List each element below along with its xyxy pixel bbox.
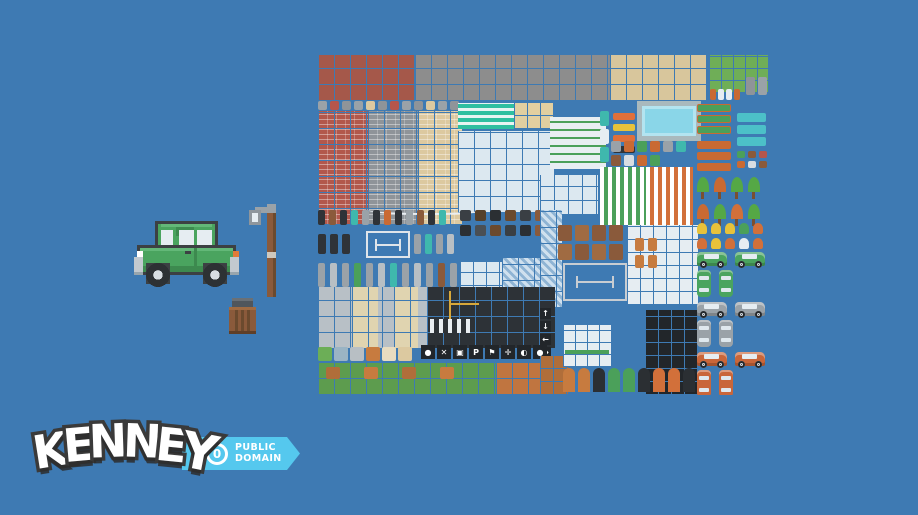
sprite-tile bbox=[676, 141, 686, 152]
car-top-sprite bbox=[697, 270, 711, 297]
floorplan-beam bbox=[577, 281, 613, 283]
road-sign-tile: ◐ bbox=[517, 345, 531, 359]
tree-sprite bbox=[697, 177, 709, 199]
car-top-sprite bbox=[719, 370, 733, 395]
sprite-tile bbox=[426, 101, 435, 110]
sprite-tile bbox=[748, 161, 756, 168]
street-lamp-sprite bbox=[249, 204, 282, 297]
sprite-tile bbox=[505, 210, 516, 221]
sprite-tile bbox=[330, 101, 339, 110]
sprite-tile bbox=[373, 210, 380, 225]
sprite-tile bbox=[737, 113, 766, 122]
sprite-tile bbox=[710, 89, 716, 100]
green-car-sprite bbox=[134, 218, 239, 290]
sprite-tile bbox=[428, 210, 435, 225]
sprite-tile bbox=[613, 113, 635, 120]
street-lamps bbox=[318, 263, 460, 289]
sprite-tile bbox=[739, 238, 749, 249]
kenney-logo[interactable]: 0 PUBLIC DOMAIN KENNEY bbox=[0, 408, 320, 508]
car-side-sprite bbox=[735, 302, 765, 316]
sprite-tile bbox=[648, 238, 657, 251]
fences-brown bbox=[558, 225, 624, 263]
sprite-tile bbox=[611, 155, 621, 166]
sprite-tile bbox=[439, 210, 446, 225]
sprite-tile bbox=[575, 225, 589, 241]
sidewalk-tan-col1 bbox=[352, 287, 378, 349]
sprite-tile bbox=[734, 89, 740, 100]
sprite-tile bbox=[390, 263, 397, 287]
road-sign-tile: ● bbox=[421, 345, 435, 359]
road-sign-tile: ✕ bbox=[437, 345, 451, 359]
court-props bbox=[710, 89, 744, 101]
sprite-tile bbox=[737, 125, 766, 134]
kenney-wordmark: KENNEY bbox=[32, 416, 214, 474]
sprite-tile bbox=[718, 89, 724, 100]
sprite-tile bbox=[426, 263, 433, 287]
sprite-tile bbox=[402, 263, 409, 287]
floorplan-stub bbox=[375, 239, 377, 251]
spritesheet: ↑↓←→●✕▣P⚑✛◐● bbox=[318, 53, 768, 395]
roof-red bbox=[318, 55, 415, 101]
sprite-tile bbox=[725, 238, 735, 249]
sprite-tile bbox=[475, 225, 486, 236]
road-sign-tile: ↓ bbox=[540, 321, 551, 332]
sprite-tile bbox=[378, 263, 385, 287]
sprite-tile bbox=[613, 124, 635, 131]
sprite-tile bbox=[575, 244, 589, 260]
tree-sprite bbox=[748, 177, 760, 199]
sprite-tile bbox=[390, 101, 399, 110]
sprite-tile bbox=[366, 347, 380, 361]
sprite-tile bbox=[351, 210, 358, 225]
sprite-tile bbox=[759, 161, 767, 168]
sprite-tile bbox=[330, 263, 337, 287]
sprite-tile bbox=[329, 210, 336, 225]
small-props-right bbox=[737, 151, 768, 175]
poles bbox=[414, 234, 460, 258]
cars-gray bbox=[697, 302, 768, 350]
sidewalk-tan-col2 bbox=[394, 287, 418, 349]
sprite-tile bbox=[438, 101, 447, 110]
badge-line1: PUBLIC bbox=[235, 443, 282, 453]
sprite-tile bbox=[425, 234, 432, 254]
sprite-tile bbox=[737, 151, 745, 158]
floorplan-stub bbox=[576, 276, 578, 288]
sprite-tile bbox=[366, 263, 373, 287]
sprite-tile bbox=[342, 263, 349, 287]
arch-tan bbox=[514, 103, 554, 129]
sprite-tile bbox=[520, 225, 531, 236]
sprite-tile bbox=[653, 368, 665, 392]
sprite-tile bbox=[638, 368, 650, 392]
sprite-tile bbox=[637, 141, 647, 152]
sprite-tile bbox=[611, 141, 621, 152]
sprite-tile bbox=[406, 210, 413, 225]
planters-orange bbox=[697, 141, 733, 173]
sprite-tile bbox=[697, 141, 731, 149]
road-sign-tile: P bbox=[469, 345, 483, 359]
car-side-sprite bbox=[697, 352, 727, 366]
tree-sprite bbox=[731, 177, 743, 199]
sprite-tile bbox=[342, 234, 350, 254]
sprite-tile bbox=[600, 147, 609, 162]
car-side-sprite bbox=[735, 352, 765, 366]
sprite-tile bbox=[318, 101, 327, 110]
sprite-tile bbox=[402, 367, 416, 379]
sprite-tile bbox=[711, 238, 721, 249]
sprite-tile bbox=[364, 367, 378, 379]
sprite-tile bbox=[737, 137, 766, 146]
sprite-tile bbox=[758, 77, 767, 95]
sprite-tile bbox=[726, 89, 732, 100]
sprite-tile bbox=[330, 234, 338, 254]
crosswalk bbox=[430, 319, 470, 333]
street-props bbox=[611, 141, 695, 167]
badge-line2: DOMAIN bbox=[235, 454, 282, 464]
sprite-tile bbox=[609, 244, 623, 260]
sprite-tile bbox=[578, 368, 590, 392]
floorplan-stub bbox=[399, 239, 401, 251]
sprite-tile bbox=[460, 210, 471, 221]
sprite-tile bbox=[354, 101, 363, 110]
sprite-tile bbox=[648, 255, 657, 268]
sprite-tile bbox=[683, 368, 695, 392]
sprite-tile bbox=[635, 238, 644, 251]
car-side-sprite bbox=[735, 252, 765, 266]
car-top-sprite bbox=[697, 370, 711, 395]
sprite-tile bbox=[438, 263, 445, 287]
wall-caps bbox=[318, 101, 460, 111]
sprite-tile bbox=[746, 77, 755, 95]
market-row bbox=[697, 223, 768, 250]
road-sign-tile: ▣ bbox=[453, 345, 467, 359]
roof-tan bbox=[610, 55, 707, 101]
sprite-tile bbox=[563, 368, 575, 392]
sprite-tile bbox=[395, 210, 402, 225]
sprite-tile bbox=[635, 255, 644, 268]
vending-teal bbox=[600, 111, 611, 165]
arches-white bbox=[540, 175, 598, 215]
sprite-tile bbox=[697, 163, 731, 171]
sprite-tile bbox=[668, 368, 680, 392]
storefront bbox=[563, 325, 611, 367]
sprite-tile bbox=[759, 151, 767, 158]
sprite-tile bbox=[318, 234, 326, 254]
road-sign-tile: ✛ bbox=[501, 345, 515, 359]
court-statues bbox=[746, 77, 768, 99]
sprite-tile bbox=[460, 225, 471, 236]
window-frames-orange bbox=[635, 238, 659, 274]
sprite-tile bbox=[592, 225, 606, 241]
sprite-tile bbox=[382, 347, 396, 361]
car-side-sprite bbox=[697, 252, 727, 266]
sprite-tile bbox=[697, 126, 731, 134]
sprite-tile bbox=[450, 263, 457, 287]
sprite-tile bbox=[650, 141, 660, 152]
sprite-tile bbox=[753, 223, 763, 234]
dirt bbox=[496, 363, 540, 395]
sprite-tile bbox=[637, 155, 647, 166]
sprite-tile bbox=[600, 129, 609, 144]
road-icon-tiles: ●✕▣P⚑✛◐● bbox=[421, 345, 547, 361]
sprite-tile bbox=[624, 155, 634, 166]
sprite-tile bbox=[650, 155, 660, 166]
sprite-tile bbox=[340, 210, 347, 225]
badge-text: PUBLIC DOMAIN bbox=[235, 443, 282, 464]
sprite-tile bbox=[520, 210, 531, 221]
storefront-stripe bbox=[565, 350, 609, 354]
planters-green bbox=[697, 104, 733, 138]
sprite-tile bbox=[725, 223, 735, 234]
pool bbox=[637, 101, 701, 141]
sprite-tile bbox=[697, 223, 707, 234]
sprite-tile bbox=[414, 234, 421, 254]
sprite-tile bbox=[593, 368, 605, 392]
sprite-tile bbox=[334, 347, 348, 361]
props-row-1 bbox=[318, 210, 460, 230]
sprite-tile bbox=[414, 101, 423, 110]
sprite-tile bbox=[414, 263, 421, 287]
sprite-tile bbox=[624, 141, 634, 152]
sprite-tile bbox=[609, 225, 623, 241]
sprite-tile bbox=[558, 225, 572, 241]
sprite-tile bbox=[739, 223, 749, 234]
car-top-sprite bbox=[719, 270, 733, 297]
sprite-tile bbox=[737, 161, 745, 168]
sprite-tile bbox=[748, 151, 756, 158]
cars-orange bbox=[697, 352, 768, 395]
sprite-tile bbox=[490, 210, 501, 221]
roof-gray bbox=[415, 55, 610, 101]
road-line-yellow-v bbox=[449, 291, 451, 319]
sprite-tile bbox=[490, 225, 501, 236]
cars-green bbox=[697, 252, 768, 300]
sprite-tile bbox=[663, 141, 673, 152]
sprite-tile bbox=[697, 115, 731, 123]
sprite-tile bbox=[440, 367, 454, 379]
kenney-letter: E bbox=[60, 417, 91, 477]
sprite-tile bbox=[362, 210, 369, 225]
sprite-tile bbox=[417, 210, 424, 225]
sprite-tile bbox=[711, 223, 721, 234]
brick-red bbox=[318, 111, 368, 225]
sprite-tile bbox=[697, 152, 731, 160]
sprite-tile bbox=[326, 367, 340, 379]
sprite-tile bbox=[366, 101, 375, 110]
windows-green-bands bbox=[550, 117, 606, 169]
sprite-tile bbox=[318, 210, 325, 225]
grass-dirt-patches bbox=[326, 367, 492, 393]
car-top-sprite bbox=[719, 320, 733, 347]
road-sign-tile: ↑ bbox=[540, 308, 551, 319]
tree-sprite bbox=[714, 177, 726, 199]
doors-row bbox=[563, 368, 696, 394]
floorplan-small bbox=[366, 231, 410, 258]
sprite-tile bbox=[623, 368, 635, 392]
sprite-tile bbox=[753, 238, 763, 249]
promo-canvas: ↑↓←→●✕▣P⚑✛◐● 0 PUBLIC DOMAIN KENNEY bbox=[0, 0, 918, 515]
car-top-sprite bbox=[697, 320, 711, 347]
floorplan-beam bbox=[376, 244, 400, 246]
trash-barrel-sprite bbox=[229, 298, 256, 334]
sprite-tile bbox=[384, 210, 391, 225]
floorplan-stub bbox=[612, 276, 614, 288]
sprite-tile bbox=[558, 244, 572, 260]
sprite-tile bbox=[475, 210, 486, 221]
road-sign-tile: ⚑ bbox=[485, 345, 499, 359]
road-sign-tile: ← bbox=[540, 334, 551, 345]
sprite-tile bbox=[592, 244, 606, 260]
road-line-yellow-h bbox=[451, 303, 479, 305]
sprite-tile bbox=[436, 234, 443, 254]
sprite-tile bbox=[402, 101, 411, 110]
sprite-tile bbox=[378, 101, 387, 110]
floorplan-large bbox=[563, 263, 627, 301]
kenney-letter: N bbox=[88, 413, 124, 472]
crates-teal bbox=[737, 113, 768, 147]
sprite-tile bbox=[697, 238, 707, 249]
sprite-tile bbox=[354, 263, 361, 287]
sprite-tile bbox=[608, 368, 620, 392]
sprite-tile bbox=[350, 347, 364, 361]
car-side-sprite bbox=[697, 302, 727, 316]
awning-orange-striped bbox=[646, 167, 693, 225]
kenney-letter: N bbox=[122, 413, 158, 472]
sprite-tile bbox=[318, 263, 325, 287]
sprite-tile bbox=[318, 347, 332, 361]
awning-green-striped bbox=[600, 167, 646, 225]
edge-tiles bbox=[318, 347, 421, 362]
sprite-tile bbox=[600, 111, 609, 126]
cc0-zero: 0 bbox=[213, 447, 221, 461]
traffic-lights bbox=[318, 234, 362, 258]
road bbox=[427, 287, 555, 349]
sprite-tile bbox=[342, 101, 351, 110]
sprite-tile bbox=[447, 234, 454, 254]
sprite-tile bbox=[398, 347, 412, 361]
sprite-tile bbox=[505, 225, 516, 236]
sprite-tile bbox=[697, 104, 731, 112]
